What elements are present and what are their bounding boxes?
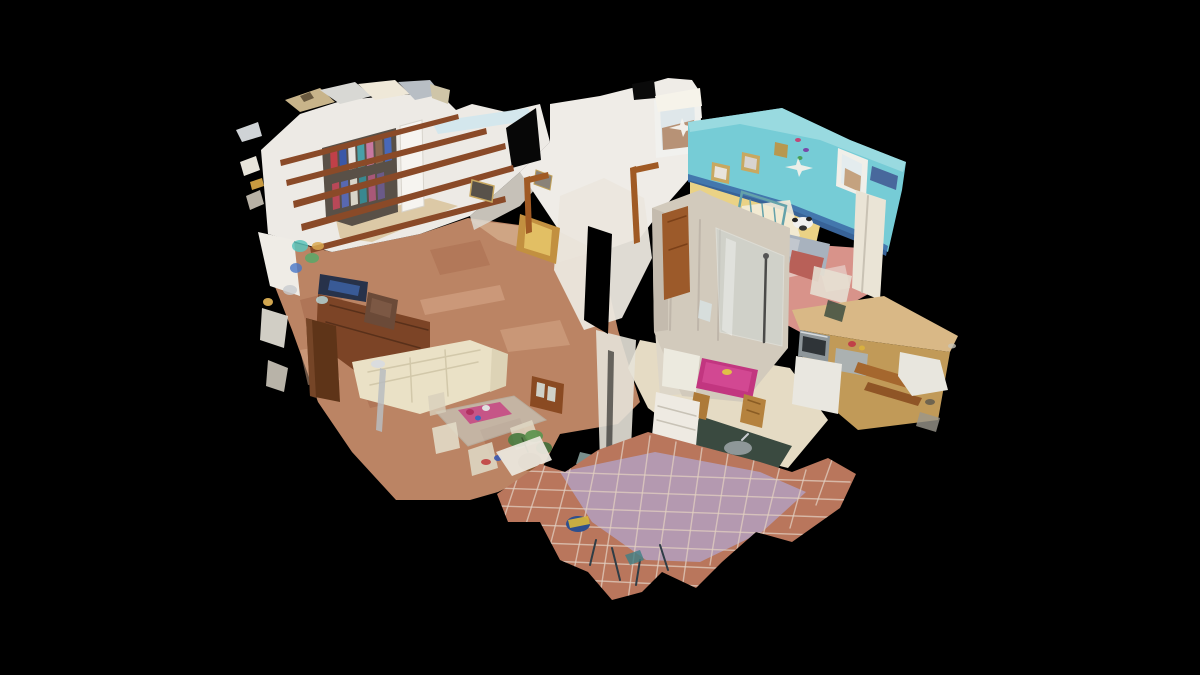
- glassware: [312, 242, 324, 250]
- tile-grout: [540, 578, 780, 590]
- panda-plush-patch: [806, 217, 812, 221]
- wall-fragment: [260, 308, 288, 348]
- counter-item: [859, 346, 865, 351]
- fridge-blob: [792, 356, 842, 414]
- table-item: [482, 405, 490, 411]
- sofa-arm: [490, 348, 508, 392]
- wall-decor-dot: [795, 138, 801, 142]
- kitchen-chair: [740, 394, 766, 428]
- upper-dark-opening: [632, 80, 656, 100]
- wall-decor-dot: [803, 148, 809, 152]
- lamp-glow: [263, 298, 273, 306]
- floating-fragment: [925, 399, 935, 405]
- table-item: [466, 409, 474, 415]
- dollhouse-scene: [0, 0, 1200, 675]
- glassware: [283, 285, 297, 295]
- edge-fragment: [236, 122, 262, 142]
- glassware: [290, 263, 302, 273]
- floor-toy: [481, 459, 491, 465]
- dining-chair: [428, 392, 446, 416]
- floating-fragment: [948, 344, 956, 349]
- table-centerpiece: [722, 369, 732, 375]
- edge-fragment: [246, 190, 264, 210]
- glassware: [316, 296, 328, 304]
- floor-lamp-shade: [371, 360, 385, 368]
- glassware: [305, 253, 319, 263]
- edge-fragment: [250, 178, 264, 190]
- closet-clothes: [368, 174, 376, 202]
- table-item: [475, 416, 481, 421]
- glazed-door-pane: [547, 386, 556, 402]
- closet-clothes: [359, 176, 367, 204]
- cutaway-hole: [584, 226, 612, 334]
- edge-fragment: [240, 156, 260, 176]
- panda-plush-patch: [792, 218, 798, 222]
- counter-item: [848, 341, 856, 347]
- kitchen-sink: [724, 441, 752, 455]
- wall-fragment: [266, 360, 288, 392]
- viewer-canvas[interactable]: [0, 0, 1200, 675]
- panda-plush-patch: [799, 225, 807, 230]
- open-door-panel: [852, 190, 886, 300]
- glassware: [292, 240, 308, 252]
- shower-head: [763, 253, 769, 259]
- glazed-door-pane: [536, 382, 545, 398]
